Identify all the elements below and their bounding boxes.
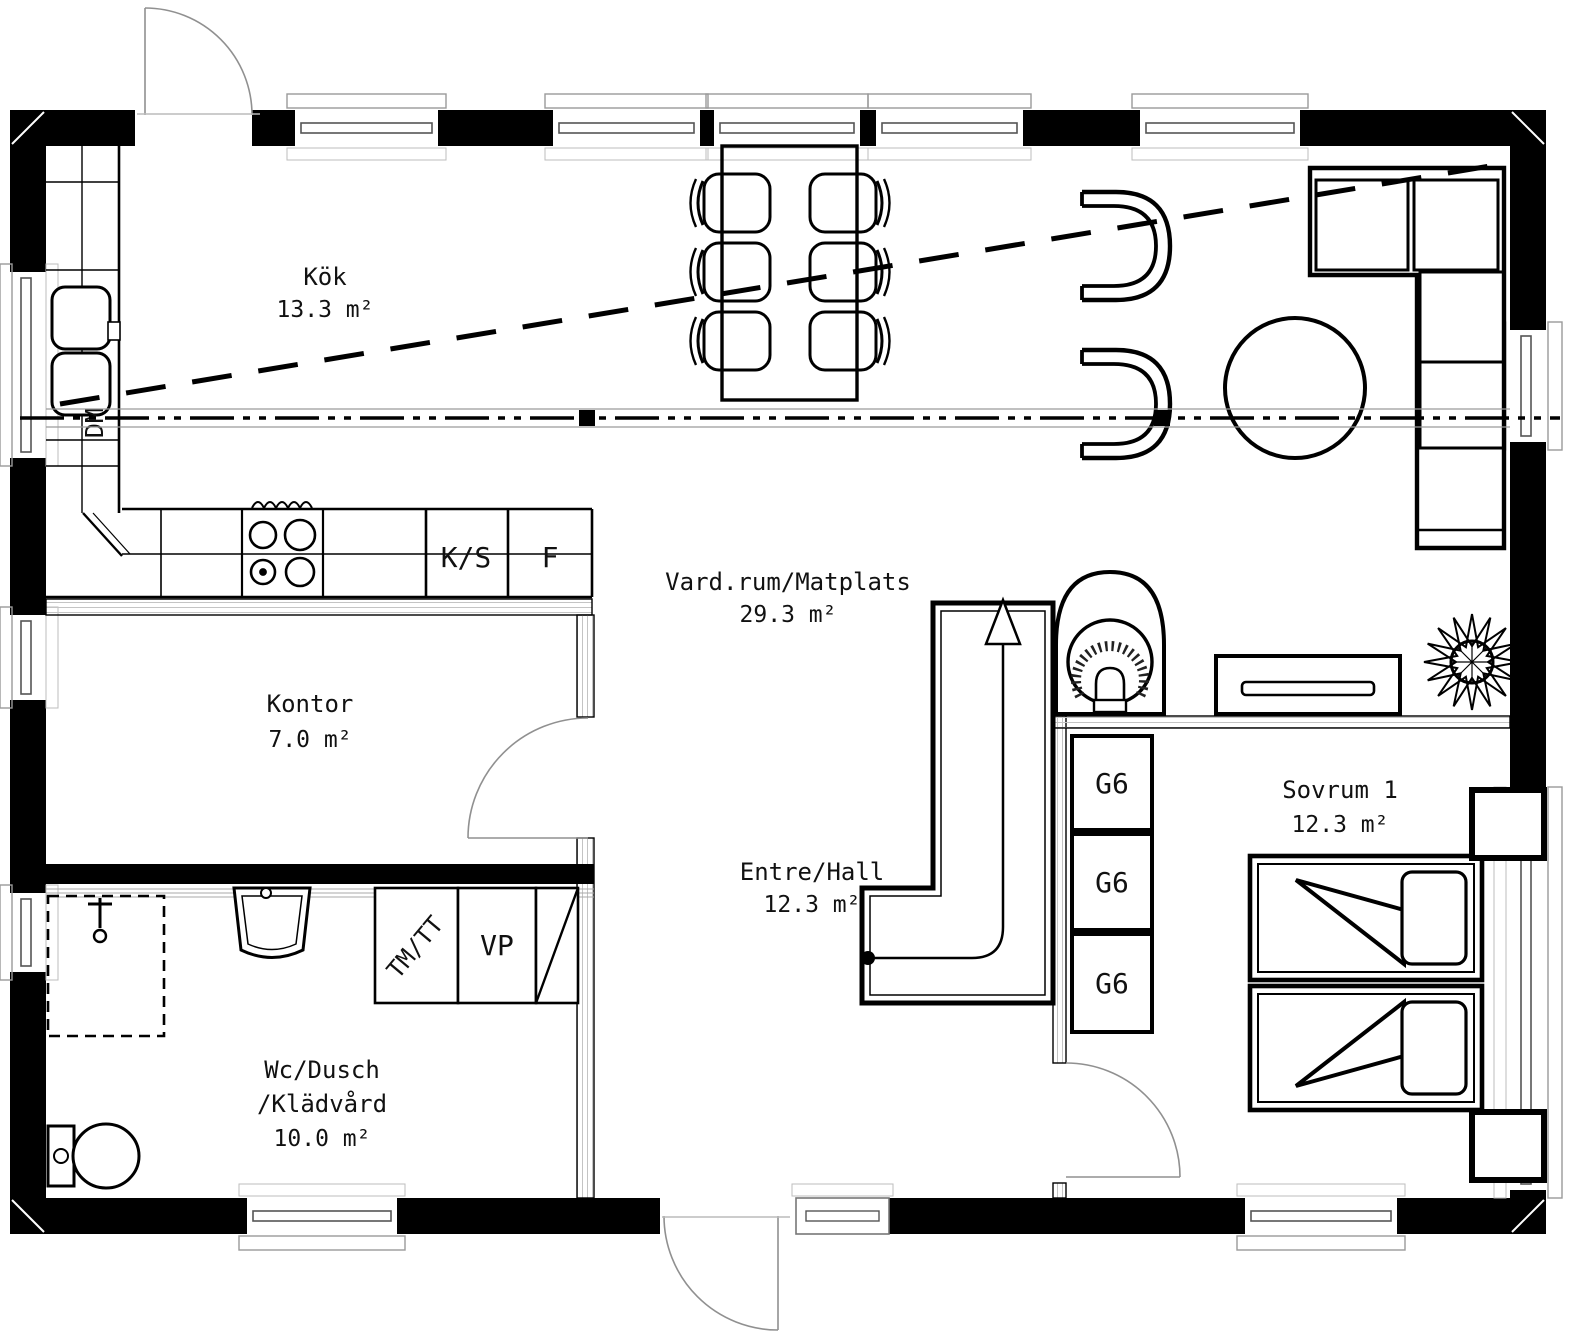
bed bbox=[1250, 856, 1482, 980]
fireplace bbox=[1056, 572, 1164, 714]
room-name: Kontor bbox=[267, 690, 354, 718]
room-name: Kök bbox=[303, 263, 347, 291]
freezer-label: F bbox=[542, 541, 559, 574]
room-name-2: /Klädvård bbox=[257, 1089, 387, 1118]
floor-plan: DM K/S F bbox=[0, 0, 1580, 1344]
room-area: 13.3 m² bbox=[277, 297, 374, 323]
room-area: 29.3 m² bbox=[740, 602, 837, 628]
room-wc: Wc/Dusch /Klädvård 10.0 m² bbox=[257, 1056, 387, 1152]
room-name: Entre/Hall bbox=[740, 858, 885, 886]
fridge-label: K/S bbox=[441, 541, 492, 574]
toilet bbox=[48, 1124, 139, 1188]
pillow bbox=[1402, 1002, 1466, 1094]
room-area: 7.0 m² bbox=[268, 727, 351, 753]
water-heater-label: VP bbox=[480, 929, 514, 962]
room-name: Wc/Dusch bbox=[264, 1056, 380, 1084]
nightstand bbox=[1472, 790, 1544, 858]
wardrobe-label-2: G6 bbox=[1095, 866, 1129, 899]
bed bbox=[1250, 986, 1482, 1110]
wall-kontor-wc bbox=[46, 864, 594, 884]
wall-hall-kontor-upper bbox=[577, 615, 594, 717]
wardrobe-label-1: G6 bbox=[1095, 767, 1129, 800]
sideboard bbox=[1216, 656, 1400, 714]
room-area: 10.0 m² bbox=[274, 1126, 371, 1152]
room-name: Sovrum 1 bbox=[1282, 776, 1398, 804]
pillow bbox=[1402, 872, 1466, 964]
wall-kok-kontor bbox=[46, 599, 592, 615]
room-area: 12.3 m² bbox=[764, 892, 861, 918]
room-name: Vard.rum/Matplats bbox=[665, 568, 911, 596]
nightstand bbox=[1472, 1112, 1544, 1180]
room-area: 12.3 m² bbox=[1292, 812, 1389, 838]
wall-vardagsrum-sovrum bbox=[1053, 716, 1510, 728]
wall-hall-wc bbox=[577, 838, 594, 1198]
wardrobe-label-3: G6 bbox=[1095, 967, 1129, 1000]
bathroom-sink bbox=[234, 888, 310, 958]
dishwasher-label: DM bbox=[80, 408, 109, 438]
wall-hall-sovrum-post bbox=[1053, 1183, 1066, 1198]
